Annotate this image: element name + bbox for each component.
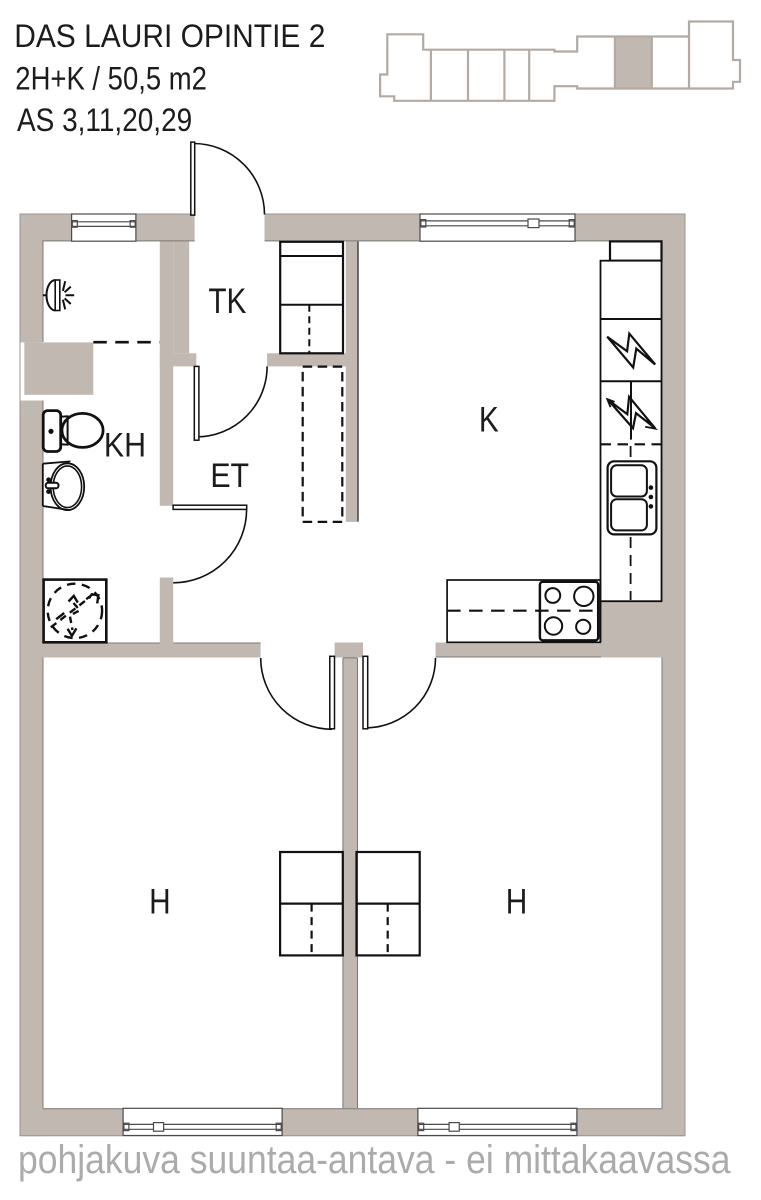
- svg-text:H: H: [149, 881, 171, 921]
- svg-text:ET: ET: [210, 456, 249, 494]
- svg-text:K: K: [479, 399, 499, 439]
- svg-text:DAS LAURI OPINTIE 2: DAS LAURI OPINTIE 2: [14, 18, 325, 54]
- svg-text:TK: TK: [208, 281, 246, 321]
- svg-text:H: H: [506, 881, 528, 921]
- svg-text:AS 3,11,20,29: AS 3,11,20,29: [17, 103, 192, 138]
- svg-text:KH: KH: [104, 426, 146, 464]
- svg-text:2H+K / 50,5 m2: 2H+K / 50,5 m2: [15, 62, 207, 97]
- svg-text:pohjakuva suuntaa-antava - ei: pohjakuva suuntaa-antava - ei mittakaava…: [18, 1138, 731, 1182]
